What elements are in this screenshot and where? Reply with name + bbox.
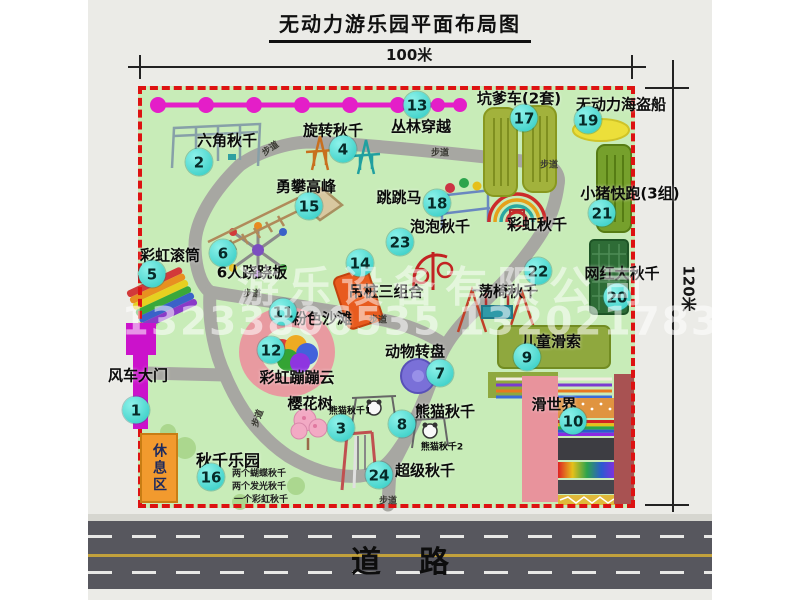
label-jumping-horse: 跳跳马 — [376, 187, 421, 208]
trail-label-2: 步道 — [431, 146, 449, 159]
badge-2: 2 — [186, 149, 213, 176]
trail-label-3: 步道 — [540, 158, 558, 171]
badge-7: 7 — [427, 360, 454, 387]
badge-15: 15 — [296, 193, 323, 220]
badge-18: 18 — [424, 190, 451, 217]
badge-19: 19 — [575, 107, 602, 134]
label-rainbow-cloud: 彩虹蹦蹦云 — [259, 367, 334, 388]
badge-24: 24 — [366, 462, 393, 489]
label-bubble-swing: 泡泡秋千 — [410, 216, 470, 237]
badge-20: 20 — [604, 284, 631, 311]
badge-12: 12 — [258, 337, 285, 364]
badge-10: 10 — [560, 408, 587, 435]
label-net-swing: 网红大秋千 — [584, 263, 659, 284]
badge-4: 4 — [330, 136, 357, 163]
trail-label-4: 步道 — [243, 287, 261, 300]
park-layout-plan: 无动力游乐园平面布局图 100米 120米 — [0, 0, 800, 600]
trail-label-5: 步道 — [369, 313, 387, 326]
label-hanging-pile: 吊桩三组合 — [348, 281, 423, 302]
badge-8: 8 — [389, 411, 416, 438]
badge-1: 1 — [123, 397, 150, 424]
label-swing-chair: 荡椅秋千 — [478, 281, 538, 302]
rest-area-label: 休息区 — [149, 443, 169, 494]
label-rainbow-swing: 彩虹秋千 — [507, 214, 567, 235]
badge-21: 21 — [589, 200, 616, 227]
rest-area: 休息区 — [140, 433, 178, 503]
label-panda-swing: 熊猫秋千 — [415, 401, 475, 422]
label-super-swing: 超级秋千 — [395, 460, 455, 481]
note-swing-park-2: 两个发光秋千 — [232, 479, 286, 492]
badge-13: 13 — [404, 92, 431, 119]
label-animal-turntable: 动物转盘 — [385, 341, 445, 362]
label-pink-beach: 粉色沙滩 — [292, 308, 352, 329]
badge-5: 5 — [139, 261, 166, 288]
badge-11: 11 — [270, 299, 297, 326]
label-windmill-gate: 风车大门 — [108, 365, 168, 386]
badge-22: 22 — [525, 258, 552, 285]
label-hexagon-swing: 六角秋千 — [197, 130, 257, 151]
cherry-tree-icon — [291, 409, 327, 450]
badge-6: 6 — [210, 240, 237, 267]
badge-3: 3 — [328, 415, 355, 442]
note-swing-park-3: 一个彩虹秋千 — [234, 492, 288, 505]
label-cherry-tree: 樱花树 — [287, 393, 332, 414]
label-rotating-swing: 旋转秋千 — [303, 120, 363, 141]
badge-9: 9 — [514, 344, 541, 371]
windmill-gate-icon — [126, 323, 156, 355]
note-panda-swing-2: 熊猫秋千2 — [421, 440, 463, 453]
badge-23: 23 — [387, 229, 414, 256]
badge-16: 16 — [198, 464, 225, 491]
note-swing-park-1: 两个蝴蝶秋千 — [232, 466, 286, 479]
trail-label-7: 步道 — [379, 494, 397, 507]
badge-17: 17 — [511, 105, 538, 132]
label-jungle-crossing: 丛林穿越 — [391, 116, 451, 137]
badge-14: 14 — [347, 250, 374, 277]
